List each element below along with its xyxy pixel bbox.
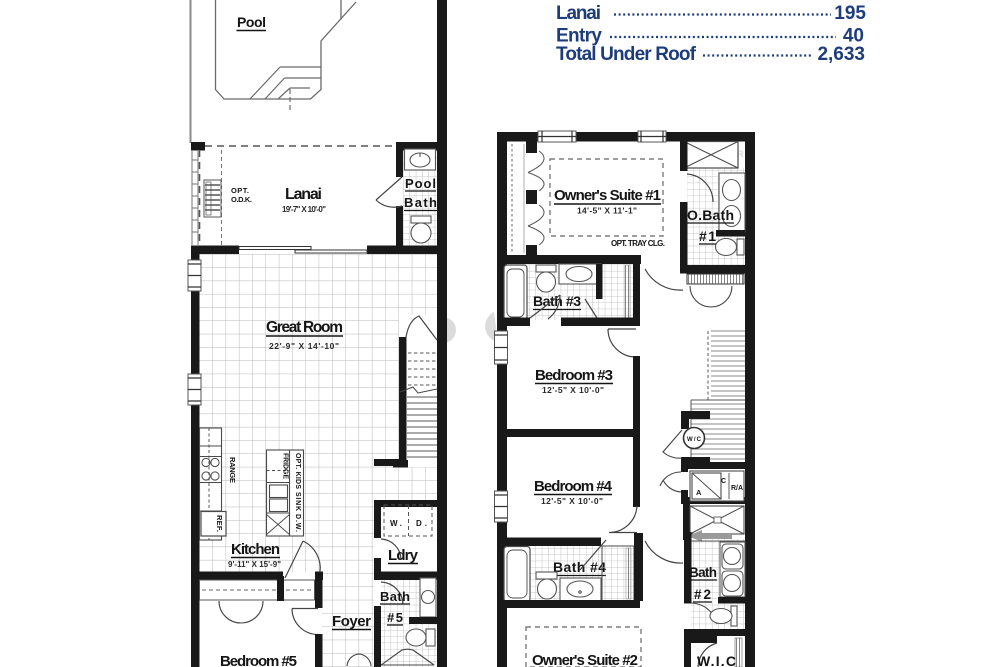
svg-text:Pool: Pool <box>237 14 266 30</box>
svg-text:O.Bath: O.Bath <box>687 207 734 223</box>
svg-text:OPT. TRAY CLG.: OPT. TRAY CLG. <box>611 239 665 248</box>
svg-text:Bath #3: Bath #3 <box>533 293 581 309</box>
svg-text:195: 195 <box>834 3 866 24</box>
svg-text:Great Room: Great Room <box>266 319 343 336</box>
svg-text:A: A <box>696 488 702 497</box>
svg-text:D.W.: D.W. <box>294 514 301 532</box>
svg-text:Bath: Bath <box>404 195 437 210</box>
svg-text:14'-5" X 11'-1": 14'-5" X 11'-1" <box>577 206 637 216</box>
svg-text:SINK: SINK <box>294 492 301 511</box>
svg-text:D.: D. <box>416 519 427 528</box>
svg-text:Bath: Bath <box>380 589 410 604</box>
svg-text:Foyer: Foyer <box>332 613 371 630</box>
svg-text:9'-11" X 15'-9": 9'-11" X 15'-9" <box>228 560 281 569</box>
svg-text:Pool: Pool <box>405 176 436 191</box>
svg-text:W.I.C: W.I.C <box>697 653 736 667</box>
svg-text:19'-7" X 10'-0": 19'-7" X 10'-0" <box>282 205 326 214</box>
svg-text:12'-5" X 10'-0": 12'-5" X 10'-0" <box>541 496 603 506</box>
svg-text:Bath: Bath <box>689 565 717 580</box>
svg-text:Bedroom #3: Bedroom #3 <box>535 367 613 384</box>
svg-text:#1: #1 <box>699 228 716 244</box>
svg-text:OPT.: OPT. <box>231 186 249 195</box>
svg-text:C: C <box>721 478 726 485</box>
svg-text:Owner's Suite #2: Owner's Suite #2 <box>532 652 638 667</box>
svg-text:Total Under Roof: Total Under Roof <box>556 44 697 65</box>
svg-text:12'-5" X 10'-0": 12'-5" X 10'-0" <box>542 385 604 395</box>
svg-text:REF.: REF. <box>215 515 224 532</box>
svg-text:O.D.K.: O.D.K. <box>231 195 252 204</box>
svg-text:Bedroom #5: Bedroom #5 <box>220 653 297 667</box>
svg-text:#5: #5 <box>387 610 403 625</box>
svg-text:OPT. KIDS: OPT. KIDS <box>294 453 301 489</box>
svg-text:Ldry: Ldry <box>388 547 419 564</box>
svg-text:22'-9" X 14'-10": 22'-9" X 14'-10" <box>269 341 339 351</box>
svg-text:#2: #2 <box>694 587 711 602</box>
svg-text:Lanai: Lanai <box>556 3 601 24</box>
svg-text:Bedroom #4: Bedroom #4 <box>534 478 613 495</box>
svg-text:RANGE: RANGE <box>228 457 237 483</box>
svg-text:Lanai: Lanai <box>285 186 322 203</box>
svg-text:2,633: 2,633 <box>817 44 865 65</box>
svg-text:Bath #4: Bath #4 <box>553 559 606 575</box>
svg-text:W.: W. <box>390 519 402 528</box>
svg-text:Kitchen: Kitchen <box>231 541 280 558</box>
svg-text:Owner's Suite #1: Owner's Suite #1 <box>554 187 661 204</box>
svg-text:W/C: W/C <box>687 437 702 443</box>
svg-text:FRIDGE: FRIDGE <box>282 453 289 479</box>
svg-text:R/A: R/A <box>731 485 743 492</box>
